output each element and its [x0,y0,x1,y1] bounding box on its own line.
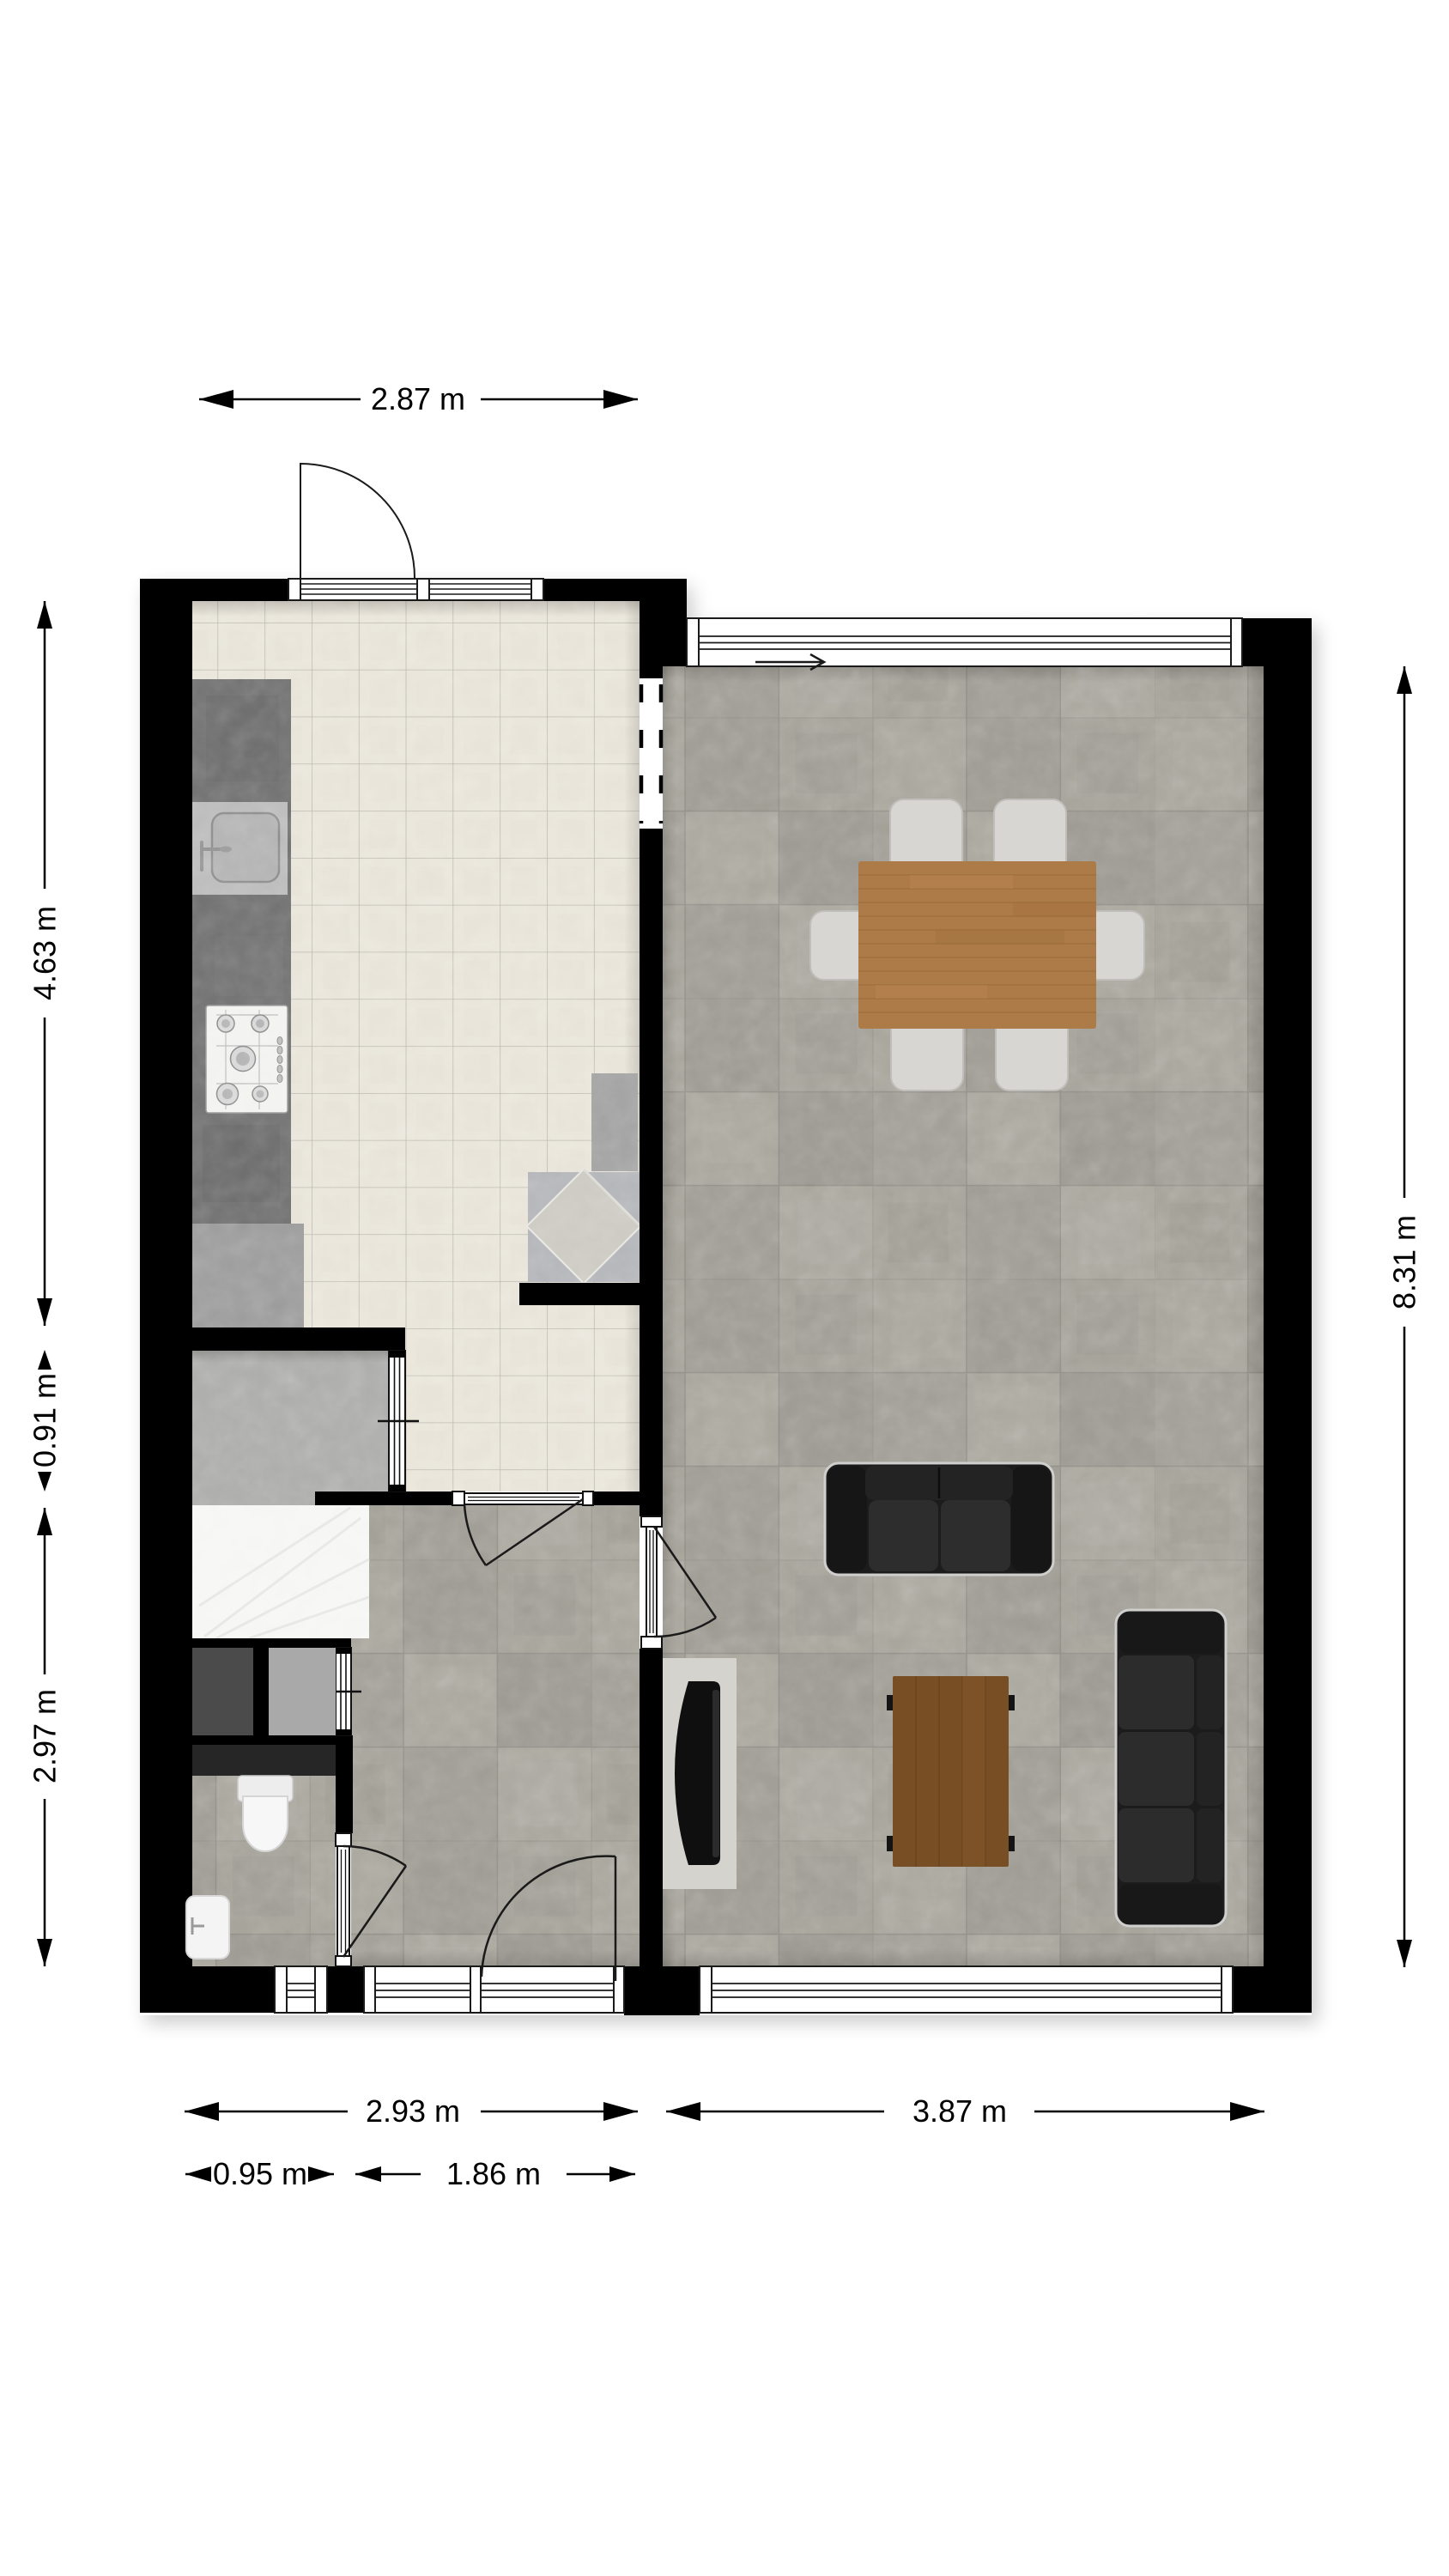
svg-text:8.31 m: 8.31 m [1387,1215,1422,1309]
svg-text:4.63 m: 4.63 m [27,906,63,1000]
svg-text:1.86 m: 1.86 m [446,2156,541,2191]
svg-text:0.91 m: 0.91 m [27,1373,63,1467]
svg-text:2.97 m: 2.97 m [27,1689,63,1783]
svg-text:2.87 m: 2.87 m [371,381,465,416]
svg-text:3.87 m: 3.87 m [912,2093,1007,2129]
svg-text:0.95 m: 0.95 m [213,2156,307,2191]
svg-text:2.93 m: 2.93 m [366,2093,460,2129]
